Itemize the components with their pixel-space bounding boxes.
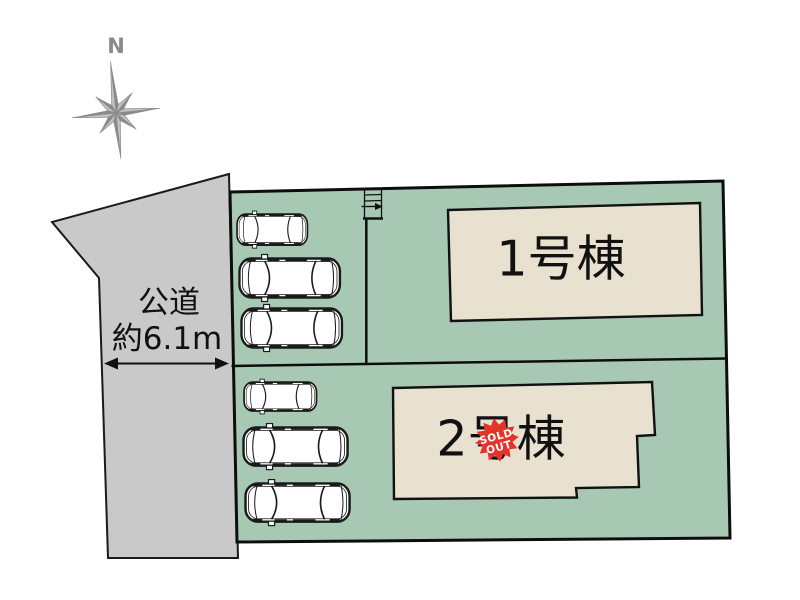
compass-rose-icon: N — [67, 34, 165, 163]
building-1: 1号棟 — [448, 203, 702, 321]
building-2: 2号棟 SOLD OUT — [393, 382, 655, 499]
plot-layout-diagram: 公道 約6.1m 1号棟 2号棟 — [0, 0, 800, 600]
road-label-line2: 約6.1m — [112, 321, 223, 357]
car-top-view-icon — [244, 379, 316, 414]
car-top-view-icon — [246, 480, 350, 526]
car-top-view-icon — [241, 305, 341, 352]
car-top-view-icon — [239, 255, 339, 302]
car-top-view-icon — [237, 211, 307, 248]
road-label-line1: 公道 — [138, 285, 200, 321]
site-plan-canvas: 公道 約6.1m 1号棟 2号棟 — [0, 0, 800, 600]
road-area: 公道 約6.1m — [52, 174, 238, 558]
building-1-label: 1号棟 — [496, 231, 625, 288]
compass-north-label: N — [107, 34, 125, 58]
car-top-view-icon — [244, 424, 348, 470]
road-polygon — [52, 174, 238, 558]
